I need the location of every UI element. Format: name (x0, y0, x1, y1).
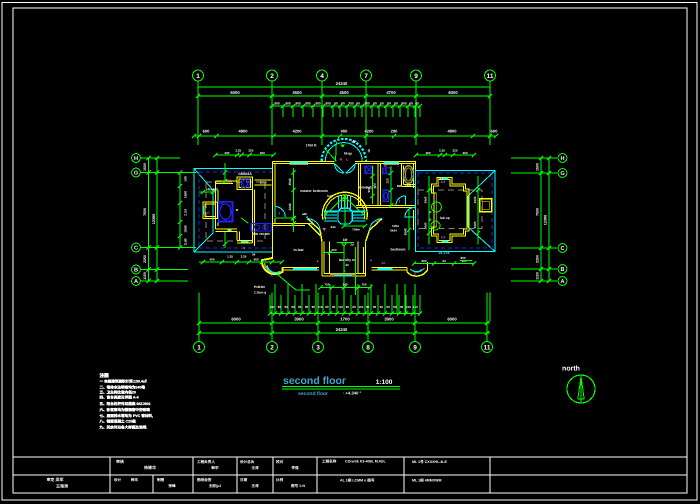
svg-text:115: 115 (358, 305, 363, 309)
svg-text:90: 90 (386, 305, 390, 309)
svg-text:900: 900 (325, 102, 331, 106)
svg-text:400: 400 (253, 257, 258, 261)
svg-text:24 1Y8: 24 1Y8 (439, 251, 450, 255)
svg-text:2: 2 (270, 73, 274, 80)
svg-text:2d: 2d (350, 242, 354, 246)
svg-text:90: 90 (366, 305, 370, 309)
svg-text:4800: 4800 (448, 129, 458, 134)
svg-text:in-law: in-law (294, 248, 304, 252)
svg-text:3900: 3900 (384, 317, 394, 322)
svg-text:18: 18 (367, 149, 371, 153)
svg-text:C: C (134, 245, 138, 251)
svg-text:14: 14 (381, 261, 385, 265)
svg-text:徐建华: 徐建华 (143, 465, 156, 470)
svg-text:90: 90 (373, 305, 377, 309)
svg-text:七、屋面排水管均为 PVC 管材料,: 七、屋面排水管均为 PVC 管材料, (100, 413, 154, 418)
svg-text:二、墙体未注明者均为240墙: 二、墙体未注明者均为240墙 (100, 385, 146, 390)
svg-text:4700: 4700 (386, 90, 396, 95)
svg-text:24: 24 (442, 259, 446, 263)
svg-text:L: L (346, 158, 348, 162)
svg-text:ML 1号 CXXXHL.4LE: ML 1号 CXXXHL.4LE (412, 460, 447, 464)
svg-text:B: B (134, 267, 138, 273)
svg-text:400: 400 (224, 151, 229, 155)
svg-text:7500: 7500 (536, 208, 540, 216)
svg-text:2.2d: 2.2d (184, 209, 188, 215)
svg-text:3: 3 (316, 344, 320, 351)
svg-text:1:3cm-q: 1:3cm-q (254, 291, 266, 295)
svg-text:F: F (430, 218, 432, 222)
svg-text:H: H (560, 156, 564, 162)
svg-text:韩东: 韩东 (131, 477, 139, 482)
svg-text:· +4.340 °: · +4.340 ° (343, 391, 362, 396)
svg-text:▲: ▲ (316, 259, 319, 263)
svg-text:1d0: 1d0 (184, 176, 188, 182)
svg-text:6000: 6000 (231, 317, 241, 322)
svg-text:900: 900 (460, 256, 465, 260)
svg-text:12300: 12300 (544, 215, 548, 226)
svg-text:12300: 12300 (152, 214, 156, 225)
svg-text:日期: 日期 (240, 477, 248, 482)
svg-text:60: 60 (394, 102, 398, 106)
svg-text:1150: 1150 (536, 272, 540, 280)
svg-text:1500: 1500 (536, 163, 540, 171)
svg-text:second floor: second floor (298, 391, 328, 397)
svg-text:14: 14 (309, 219, 313, 223)
svg-text:900: 900 (315, 102, 321, 106)
svg-text:1700: 1700 (340, 317, 350, 322)
svg-text:•: • (276, 265, 277, 269)
svg-text:400: 400 (462, 151, 467, 155)
svg-text:一 本层建筑面积计算:130.4㎡: 一 本层建筑面积计算:130.4㎡ (100, 379, 148, 384)
svg-text:900: 900 (341, 129, 348, 134)
svg-text:3540: 3540 (288, 178, 292, 185)
svg-text:north: north (562, 365, 580, 373)
svg-text:王丽(p1: 王丽(p1 (209, 484, 222, 488)
svg-text:4500: 4500 (292, 90, 302, 95)
svg-text:18d0: 18d0 (184, 191, 188, 198)
svg-text:115: 115 (318, 305, 323, 309)
svg-text:ML 1期 4MMXWM: ML 1期 4MMXWM (412, 478, 441, 483)
svg-text:3900: 3900 (294, 317, 304, 322)
svg-text:1150: 1150 (143, 272, 147, 280)
svg-text:C4: C4 (441, 236, 445, 240)
svg-text:laundry rm: laundry rm (339, 258, 357, 262)
svg-text:master bedroom: master bedroom (300, 189, 327, 193)
svg-text:90: 90 (400, 305, 404, 309)
svg-text:140x400: 140x400 (206, 187, 219, 191)
svg-text:400: 400 (425, 151, 430, 155)
svg-text:1806: 1806 (405, 184, 412, 188)
svg-text:90: 90 (312, 305, 316, 309)
svg-text:A: A (560, 279, 564, 285)
svg-text:▲: ▲ (369, 258, 372, 262)
svg-text:4200: 4200 (293, 129, 303, 134)
svg-text:34: 34 (252, 253, 256, 257)
svg-text:750: 750 (331, 248, 336, 252)
svg-text:B: B (560, 267, 564, 273)
svg-text:P#B4br: P#B4br (254, 285, 266, 289)
svg-text:H: H (134, 156, 138, 162)
svg-text:225: 225 (452, 149, 457, 153)
svg-text:90: 90 (332, 305, 336, 309)
svg-text:744m: 744m (352, 228, 360, 232)
svg-text:400: 400 (209, 257, 214, 261)
svg-text:2.25: 2.25 (241, 255, 247, 259)
svg-text:60: 60 (341, 102, 345, 106)
svg-text:11: 11 (484, 344, 491, 351)
svg-text:6000: 6000 (447, 317, 457, 322)
svg-text:9: 9 (413, 344, 417, 351)
svg-text:60: 60 (352, 305, 356, 309)
svg-text:24240: 24240 (336, 327, 348, 332)
svg-text:王涛: 王涛 (251, 465, 259, 470)
svg-text:2250: 2250 (143, 255, 147, 263)
svg-text:hall: hall (327, 194, 333, 198)
svg-text:五、阳台栏杆详见图集 98ZJ901: 五、阳台栏杆详见图集 98ZJ901 (100, 401, 151, 406)
svg-text:240: 240 (342, 282, 347, 286)
svg-text:24240: 24240 (336, 81, 348, 86)
svg-text:2.25: 2.25 (235, 149, 241, 153)
svg-text:290: 290 (391, 129, 398, 134)
svg-text:34d4: 34d4 (390, 229, 397, 233)
svg-text:3240: 3240 (288, 203, 292, 210)
svg-text:18d0: 18d0 (184, 225, 188, 232)
svg-text:AL 1期 LCMM n 图号: AL 1期 LCMM n 图号 (340, 478, 375, 483)
svg-text:60: 60 (325, 305, 329, 309)
svg-text:60: 60 (373, 102, 377, 106)
svg-text:9: 9 (414, 73, 418, 80)
svg-text:11d0: 11d0 (184, 238, 188, 245)
svg-text:2250: 2250 (536, 255, 540, 263)
svg-text:1000: 1000 (259, 180, 266, 184)
svg-text:900 700 900: 900 700 900 (253, 232, 270, 236)
svg-text:GM303A: GM303A (238, 172, 252, 176)
svg-text:90: 90 (346, 305, 350, 309)
svg-text:G: G (560, 171, 564, 177)
svg-text:校对: 校对 (276, 459, 284, 464)
svg-text:7: 7 (364, 73, 368, 80)
svg-text:11: 11 (487, 73, 494, 80)
svg-text:8: 8 (366, 344, 370, 351)
svg-text:a4b: a4b (302, 212, 307, 216)
svg-text:600: 600 (203, 129, 210, 134)
svg-text:60: 60 (387, 102, 391, 106)
svg-text:750: 750 (361, 282, 366, 286)
svg-text:J: J (278, 212, 280, 216)
svg-text:4: 4 (320, 73, 324, 80)
svg-text:2d: 2d (373, 183, 377, 187)
svg-text:90: 90 (278, 305, 282, 309)
svg-text:2: 2 (399, 200, 401, 204)
svg-text:900: 900 (274, 102, 280, 106)
svg-text:设计总负: 设计总负 (240, 459, 255, 464)
svg-text:115: 115 (406, 305, 411, 309)
svg-text:lab up: lab up (440, 216, 450, 220)
svg-text:M6: M6 (397, 184, 401, 188)
svg-text:60: 60 (409, 102, 413, 106)
svg-text:图纸会签: 图纸会签 (197, 477, 212, 482)
svg-text:900: 900 (421, 259, 426, 263)
svg-text:900: 900 (364, 102, 370, 106)
svg-text:张峰: 张峰 (168, 483, 176, 488)
svg-text:1:100: 1:100 (376, 379, 393, 386)
svg-text:600: 600 (491, 129, 498, 134)
svg-text:60: 60 (334, 102, 338, 106)
svg-text:ld-qy: ld-qy (344, 152, 352, 156)
svg-text:900: 900 (305, 102, 311, 106)
svg-text:24d0: 24d0 (473, 221, 477, 228)
svg-text:设计: 设计 (114, 477, 122, 482)
svg-text:注图: 注图 (100, 373, 110, 378)
svg-text:韩学: 韩学 (211, 465, 219, 470)
svg-text:COrwtik K3-408L M.4GL: COrwtik K3-408L M.4GL (345, 460, 386, 464)
svg-text:750: 750 (348, 102, 354, 106)
svg-text:A: A (134, 279, 138, 285)
svg-text:1: 1 (196, 73, 200, 80)
svg-text:王海涛: 王海涛 (56, 484, 68, 489)
svg-text:1.25: 1.25 (227, 255, 233, 259)
svg-text:UP: UP (352, 140, 358, 144)
svg-text:王涛: 王涛 (251, 483, 259, 488)
svg-text:工程名称: 工程名称 (322, 459, 337, 464)
svg-text:4500: 4500 (339, 90, 349, 95)
svg-text:审定 吴军: 审定 吴军 (46, 477, 63, 482)
svg-text:2: 2 (270, 344, 274, 351)
svg-text:90: 90 (291, 305, 295, 309)
svg-text:900: 900 (295, 102, 301, 106)
svg-text:工程负责人: 工程负责人 (197, 459, 215, 464)
svg-text:M: M (340, 158, 343, 162)
svg-text:second floor: second floor (283, 375, 346, 387)
svg-text:2.25: 2.25 (439, 149, 445, 153)
svg-text:三、卫生间比室内低20: 三、卫生间比室内低20 (100, 390, 136, 395)
svg-text:4800: 4800 (239, 129, 249, 134)
svg-text:60: 60 (356, 102, 360, 106)
svg-text:60: 60 (415, 102, 419, 106)
svg-text:CM: CM (226, 179, 231, 183)
svg-text:7500: 7500 (143, 208, 147, 216)
svg-text:图号 1-N: 图号 1-N (291, 484, 305, 488)
svg-text:bedroom: bedroom (391, 248, 406, 252)
svg-text:20: 20 (345, 263, 349, 267)
svg-text:C: C (560, 246, 564, 252)
svg-text:3640: 3640 (404, 228, 408, 235)
svg-text:90: 90 (298, 305, 302, 309)
svg-text:九、其余详见各大样图及说明.: 九、其余详见各大样图及说明. (99, 425, 148, 430)
svg-text:14: 14 (375, 219, 379, 223)
svg-text:900: 900 (401, 102, 407, 106)
svg-text:八、钢筋混凝土 C25级: 八、钢筋混凝土 C25级 (99, 419, 137, 424)
svg-text:24d0: 24d0 (423, 222, 427, 229)
svg-text:90: 90 (305, 305, 309, 309)
svg-text:F: F (430, 211, 432, 215)
svg-text:90: 90 (380, 305, 384, 309)
svg-text:6000: 6000 (230, 90, 240, 95)
svg-text:120: 120 (386, 178, 390, 183)
svg-text:900: 900 (285, 102, 291, 106)
svg-text:制图: 制图 (157, 477, 165, 482)
svg-text:审核: 审核 (116, 459, 124, 464)
svg-text:24d: 24d (438, 177, 443, 181)
svg-text:115: 115 (338, 305, 343, 309)
svg-text:1750 R: 1750 R (306, 144, 317, 148)
svg-text:四、窗台高度见详图 A-4: 四、窗台高度见详图 A-4 (100, 395, 139, 400)
svg-text:1: 1 (197, 344, 201, 351)
svg-text:444: 444 (330, 225, 335, 229)
svg-text:900: 900 (367, 187, 371, 192)
svg-text:李强: 李强 (290, 465, 299, 470)
svg-text:400: 400 (260, 151, 265, 155)
svg-text:六、卧室窗均为塑钢窗中空玻璃: 六、卧室窗均为塑钢窗中空玻璃 (100, 407, 151, 412)
svg-text:750: 750 (324, 282, 329, 286)
svg-text:1M: 1M (343, 238, 348, 242)
svg-text:60: 60 (380, 102, 384, 106)
svg-text:24d0: 24d0 (423, 196, 427, 203)
svg-text:比例: 比例 (276, 477, 284, 482)
svg-text:6000: 6000 (448, 90, 458, 95)
svg-text:24d0: 24d0 (473, 196, 477, 203)
svg-text:1500: 1500 (143, 163, 147, 171)
svg-text:4200: 4200 (365, 129, 375, 134)
svg-text:225: 225 (248, 149, 253, 153)
svg-text:G: G (134, 170, 138, 176)
svg-text:1d04: 1d04 (392, 224, 399, 228)
svg-text:90: 90 (393, 305, 397, 309)
